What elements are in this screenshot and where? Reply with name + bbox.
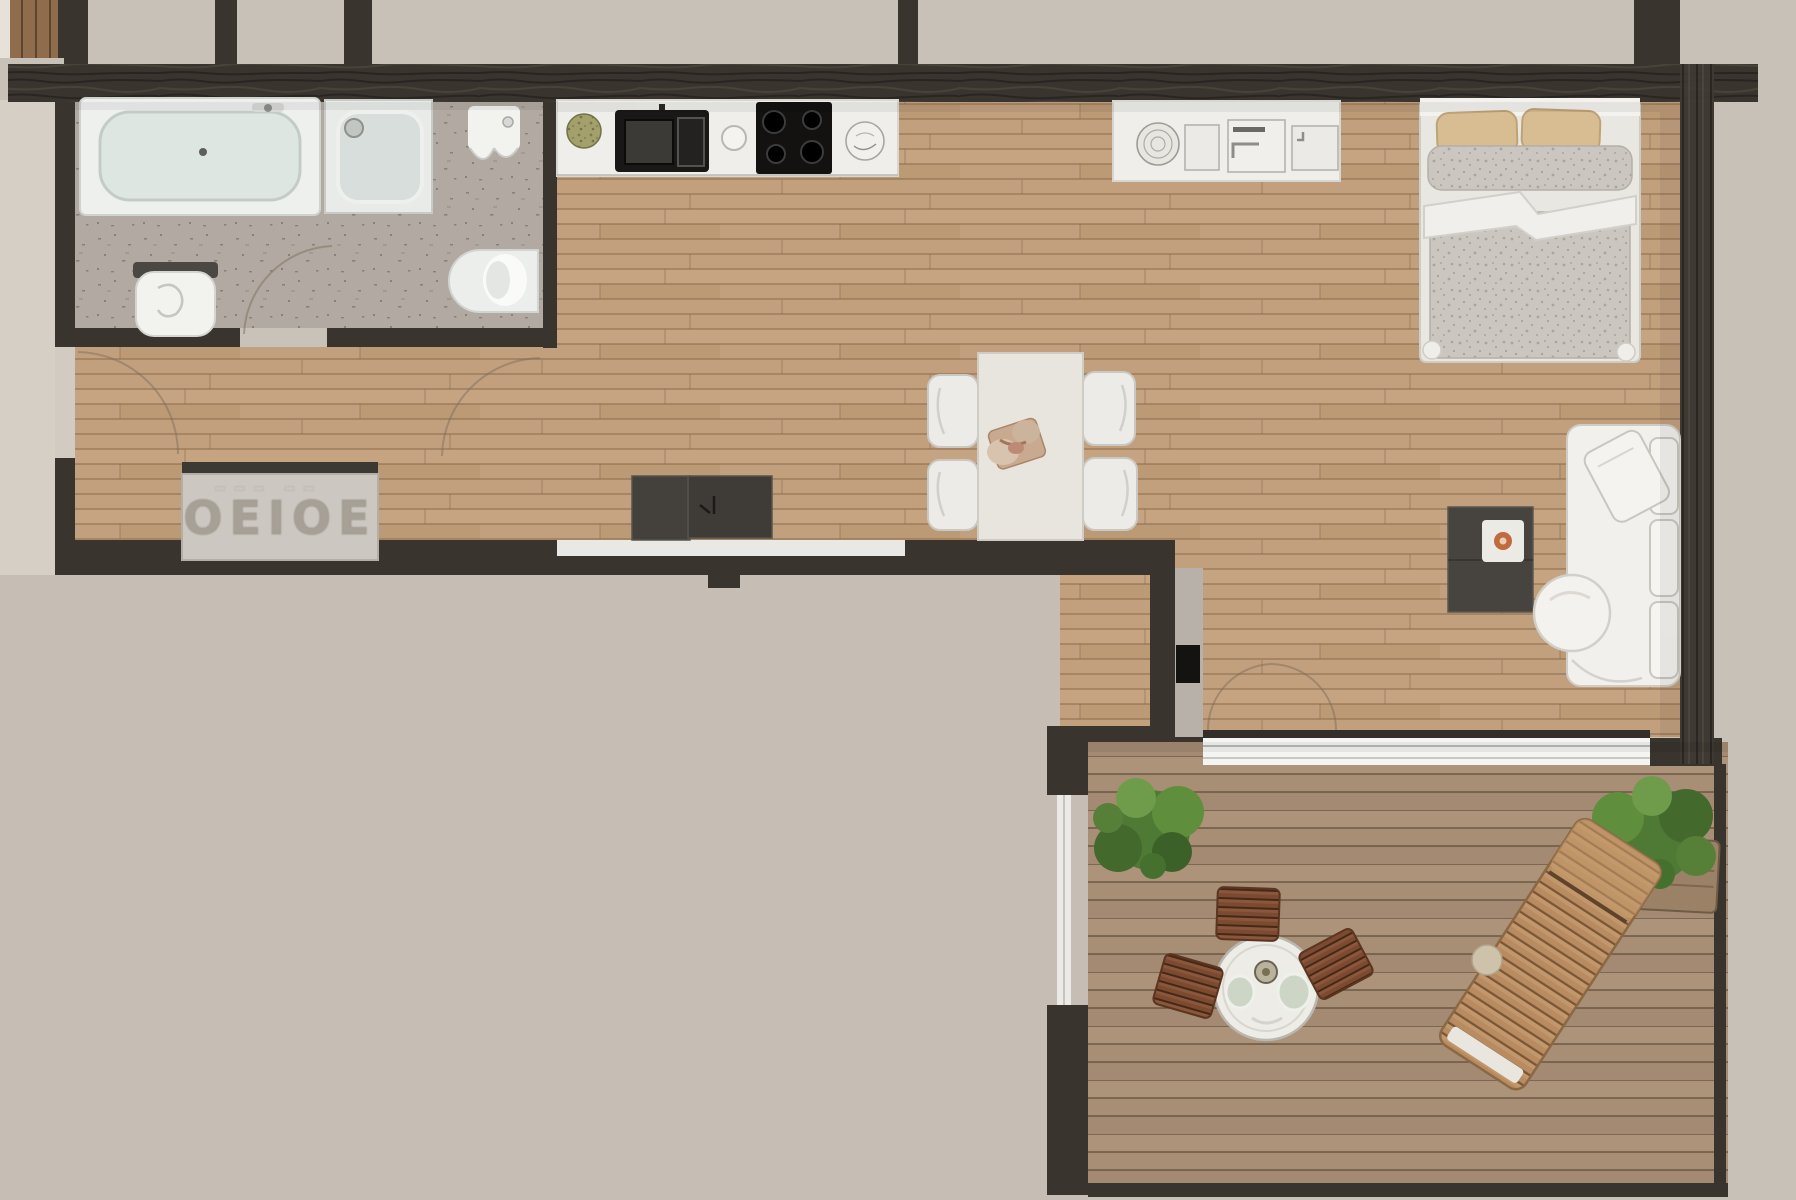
console-back-edge — [182, 462, 378, 474]
stair-side — [58, 0, 66, 58]
chair-right-top — [1083, 372, 1135, 445]
balcony-post-topleft — [1047, 726, 1088, 795]
chair-right-bottom — [1083, 458, 1137, 530]
wall-stud-corner — [1634, 0, 1680, 66]
entry-door-threshold — [55, 347, 75, 458]
exterior-stairs — [0, 0, 66, 58]
console-embossed-small-text: ▭▭▭ ▭▭ — [214, 481, 322, 496]
media-table — [1448, 507, 1533, 612]
bathroom-right-wall — [543, 84, 557, 348]
glass-cup-2 — [1278, 974, 1310, 1010]
left-wall-upper — [55, 84, 75, 348]
hallway-console: OEIOE ▭▭▭ ▭▭ — [182, 462, 378, 560]
step-wall — [1150, 568, 1175, 733]
balcony-bottom-edge — [1088, 1183, 1728, 1197]
counter-plant-bowl — [567, 114, 601, 148]
chair-left-bottom — [928, 460, 978, 530]
stair-edge — [0, 0, 10, 58]
tub-drain — [199, 148, 207, 156]
shower-drain — [345, 119, 363, 137]
island-cabinet-3 — [1292, 126, 1338, 170]
glass-cup-1 — [1226, 976, 1254, 1008]
bathroom-bottom-wall-b — [327, 328, 550, 347]
island-cabinet-1 — [1185, 125, 1219, 170]
wall-stud — [215, 0, 237, 66]
floor-plan-render: OEIOE ▭▭▭ ▭▭ — [0, 0, 1796, 1200]
window-sill — [557, 540, 905, 556]
sideboard-cabinet — [632, 476, 772, 540]
exterior-left-landing — [0, 100, 58, 575]
pier-black-panel — [1176, 645, 1200, 683]
bed — [1420, 98, 1640, 362]
kitchen-sink — [846, 122, 884, 160]
cooktop — [756, 102, 832, 174]
bed-foot-left — [1423, 341, 1441, 359]
wall-stud — [898, 0, 918, 66]
wall-toilet — [449, 250, 538, 312]
side-stone — [1472, 945, 1502, 975]
toilet — [133, 262, 218, 336]
top-wall-grain — [8, 64, 1758, 102]
bathtub — [80, 98, 320, 215]
cabinet-handle — [1233, 127, 1265, 132]
balcony-post-bottomleft — [1047, 1005, 1088, 1195]
wall-stud — [64, 0, 88, 66]
island-sink — [1137, 123, 1179, 165]
bistro-chair-top — [1216, 887, 1280, 941]
shower — [325, 100, 432, 213]
bolster-row — [1428, 146, 1632, 190]
exterior-below-kitchen — [557, 575, 1060, 737]
bathroom-door-threshold — [240, 328, 327, 347]
wall-stud — [344, 0, 372, 66]
right-wall-grain — [1680, 64, 1714, 764]
balcony-door-head — [1203, 730, 1650, 738]
bed-foot-right — [1617, 343, 1635, 361]
counter-dish — [722, 126, 746, 150]
microwave — [615, 104, 709, 172]
floor-plan-stage: OEIOE ▭▭▭ ▭▭ — [0, 0, 1796, 1200]
chair-left-top — [928, 375, 978, 447]
balcony-right-edge — [1714, 764, 1726, 1188]
console-embossed-text: OEIOE — [183, 491, 376, 545]
round-ottoman — [1534, 575, 1610, 651]
